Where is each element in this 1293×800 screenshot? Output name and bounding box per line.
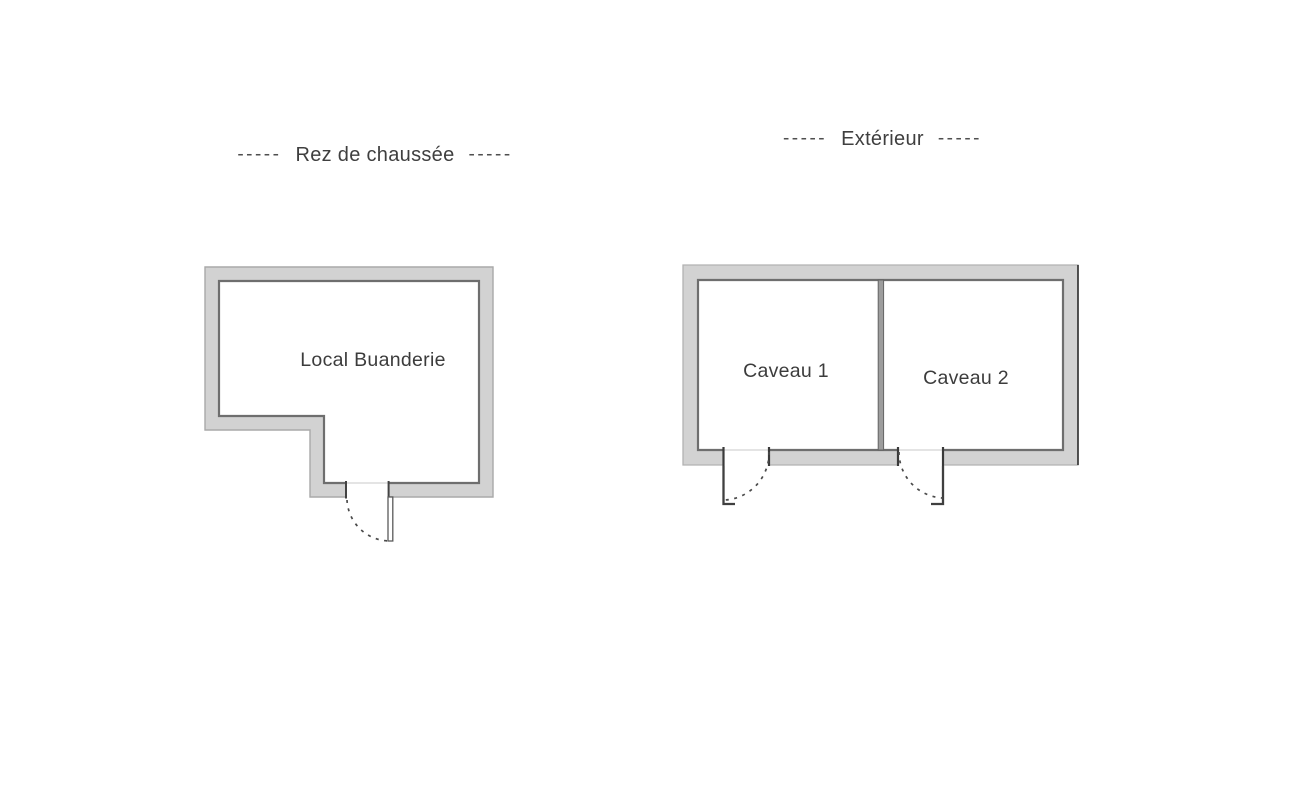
wall-ring-rdc xyxy=(205,267,493,497)
floor-plan-drawing: Local Buanderie xyxy=(0,0,1293,800)
door-swing-icon-rdc xyxy=(347,497,393,541)
room-label-caveau-1: Caveau 1 xyxy=(743,360,829,382)
floor-plan-document: ----- Rez de chaussée ----- ----- Extéri… xyxy=(0,0,1293,800)
room-label-local-buanderie: Local Buanderie xyxy=(300,349,445,371)
wall-outline-inner-rdc xyxy=(219,281,479,483)
floorplan-rez-de-chaussee: Local Buanderie xyxy=(205,267,493,541)
wall-outline-outer-rdc xyxy=(205,267,493,497)
door-leaf-rdc xyxy=(388,497,393,541)
floorplan-exterieur: Caveau 1 Caveau 2 xyxy=(683,265,1078,504)
room-label-caveau-2: Caveau 2 xyxy=(923,367,1009,389)
door-opening-rdc xyxy=(345,478,389,500)
door-leaf-caveau1 xyxy=(724,466,736,504)
door-swing-arc-rdc xyxy=(347,500,390,541)
divider-wall-ext xyxy=(878,280,883,450)
